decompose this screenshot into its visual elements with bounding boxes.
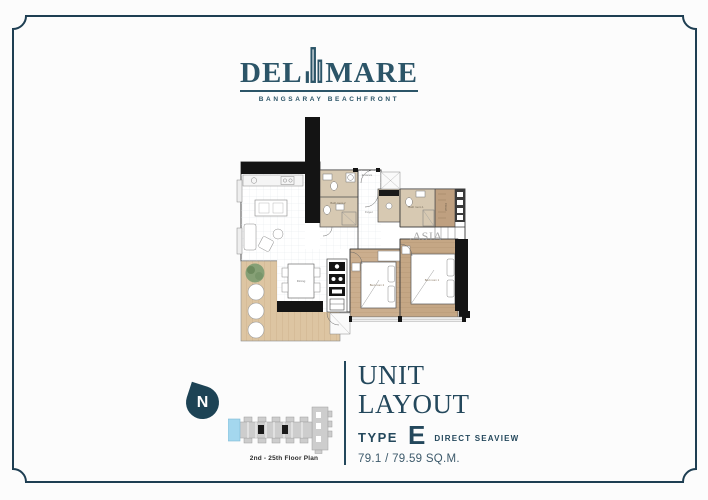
hall-floor (320, 227, 358, 249)
floor-plan-drawing: .ASIA Entrance Foyer Bath room 2 Bath ro… (228, 112, 498, 354)
unit-title-line1: UNIT (358, 361, 519, 390)
sink-icon (386, 203, 392, 209)
unit-type-row: TYPE E DIRECT SEAVIEW (358, 424, 519, 447)
brand-word-right: MARE (325, 59, 418, 88)
cooktop-unit-icon (329, 274, 345, 284)
sink-icon (416, 191, 425, 197)
balcony-table-icon (248, 284, 264, 300)
label-foyer: Foyer (365, 210, 373, 214)
brand-logo: DEL MARE BANGSARAY BEACHFRONT (240, 42, 418, 103)
label-bed1: Bed room 1 (425, 278, 440, 282)
fridge-icon (330, 299, 344, 310)
logo-underline (240, 90, 418, 92)
unit-info-block: UNIT LAYOUT TYPE E DIRECT SEAVIEW 79.1 /… (344, 361, 519, 465)
chair-icon (314, 283, 320, 292)
toilet-icon (331, 182, 338, 191)
floor-plan: .ASIA Entrance Foyer Bath room 2 Bath ro… (228, 112, 498, 354)
unit-title-line2: LAYOUT (358, 390, 519, 419)
brand-wordmark: DEL MARE (240, 42, 418, 88)
label-dining: Dining (297, 279, 306, 283)
toilet-icon (324, 206, 331, 215)
window (237, 228, 242, 254)
key-plan (228, 406, 340, 454)
label-bath1: Bath room 1 (408, 205, 424, 209)
watermark: .ASIA (409, 229, 443, 243)
vanity-counter (379, 190, 399, 196)
label-bath2: Bath room 2 (330, 201, 346, 205)
balcony-table-icon (248, 303, 264, 319)
towers-icon (305, 42, 324, 88)
brochure-page: DEL MARE BANGSARAY BEACHFRONT (0, 0, 708, 500)
chair-icon (314, 268, 320, 277)
kitchen-island (255, 200, 287, 216)
keyplan-core (258, 425, 264, 434)
compass-north: N (186, 386, 222, 422)
keyplan-core (282, 425, 288, 434)
chair-icon (282, 268, 288, 277)
nightstand-icon (352, 263, 360, 271)
view-text: DIRECT SEAVIEW (434, 434, 519, 448)
wardrobe-icon (378, 251, 400, 261)
keyplan-building-bar (238, 422, 312, 438)
label-bed2: Bed room 2 (370, 283, 385, 287)
area-text: 79.1 / 79.59 SQ.M. (358, 453, 519, 465)
chair-icon (282, 283, 288, 292)
structural-wall (277, 301, 323, 312)
side-table-icon (273, 229, 283, 239)
type-label: TYPE (358, 430, 398, 448)
balcony-table-icon (248, 322, 264, 338)
brand-tagline: BANGSARAY BEACHFRONT (240, 96, 418, 103)
window (237, 180, 242, 202)
label-closet: Closet (444, 203, 448, 211)
label-entrance: Entrance (362, 173, 373, 177)
keyplan-highlight-unit (228, 419, 240, 441)
sink-icon (323, 174, 332, 180)
structural-wall (455, 239, 468, 311)
type-value: E (408, 424, 425, 447)
nightstand-icon (402, 246, 410, 254)
plant-icon (246, 264, 265, 283)
brand-word-left: DEL (240, 59, 303, 88)
north-label: N (186, 386, 219, 419)
keyplan-caption: 2nd - 25th Floor Plan (228, 455, 340, 462)
structural-wall (241, 162, 320, 174)
sofa-icon (244, 224, 256, 250)
